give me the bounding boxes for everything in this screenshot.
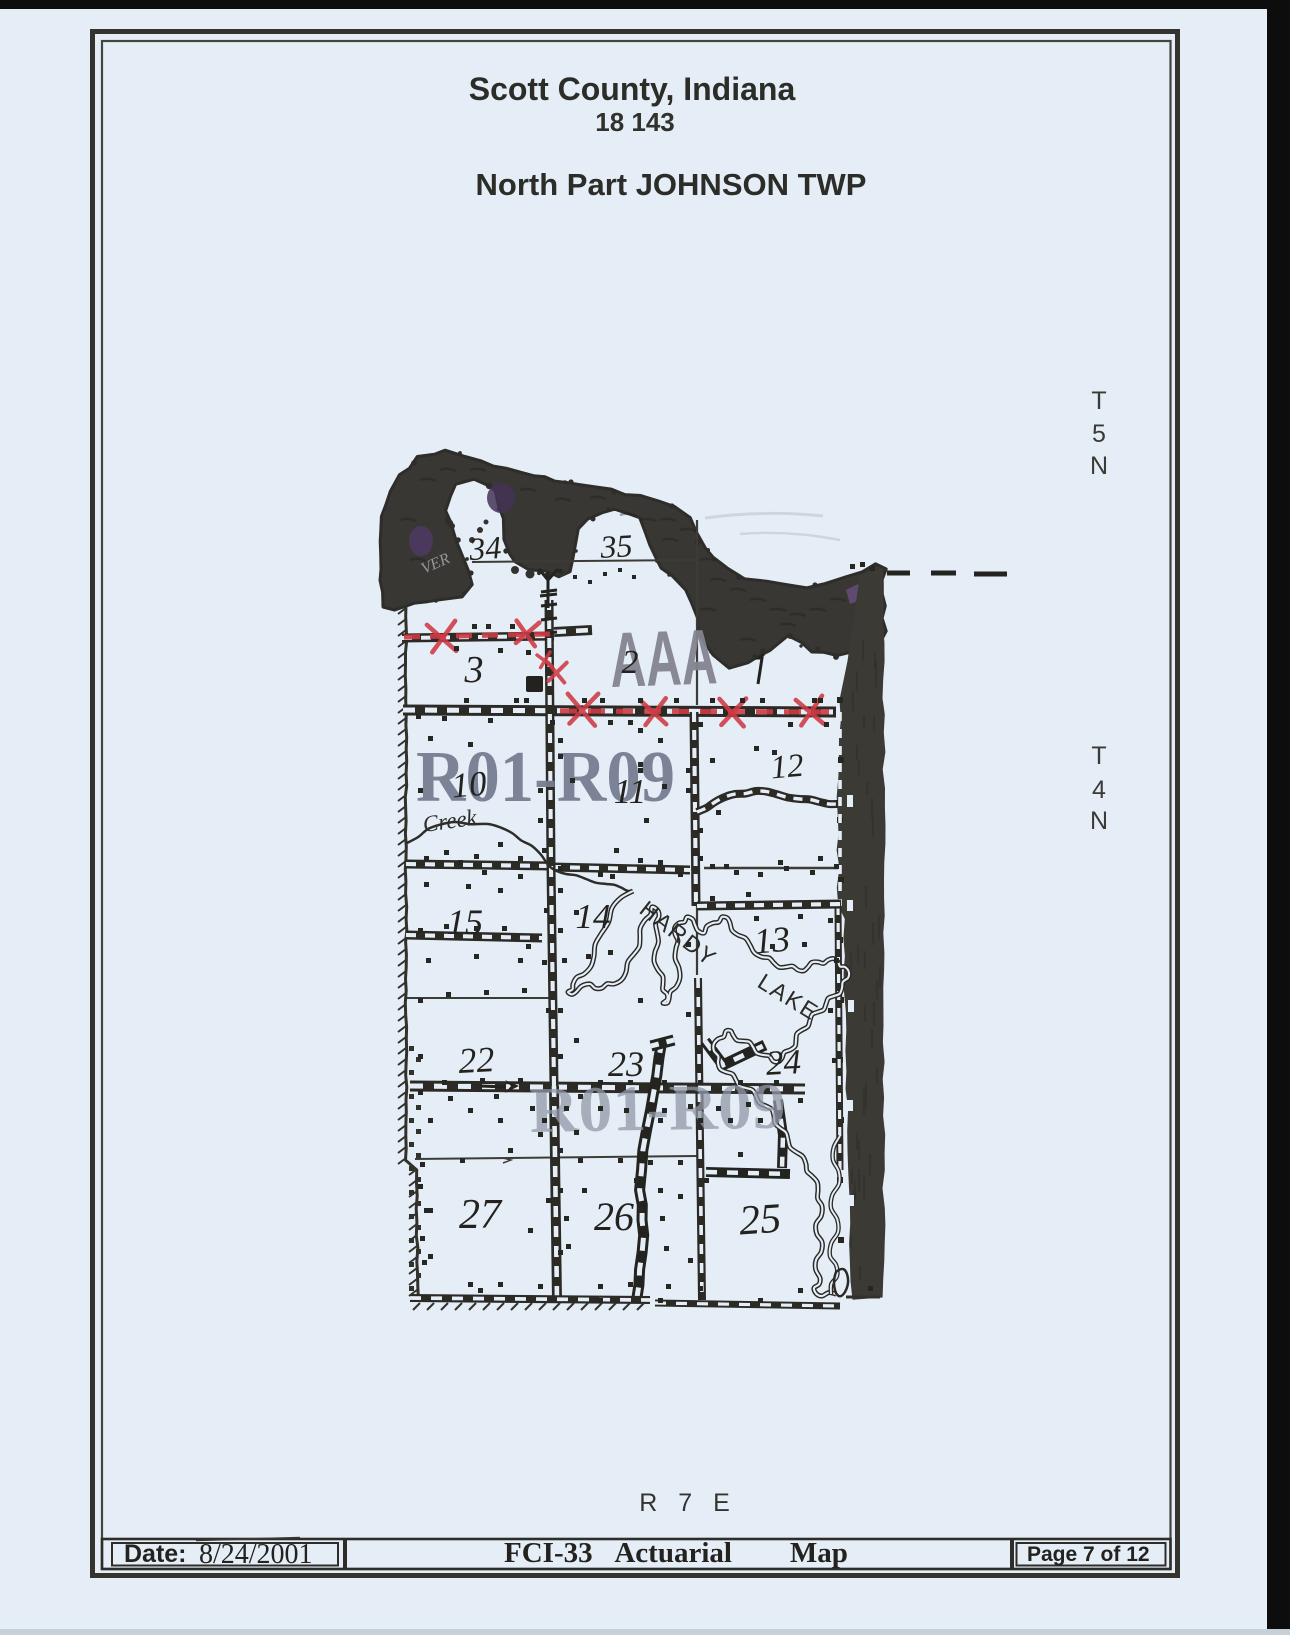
svg-text:24: 24 <box>765 1042 802 1083</box>
svg-text:North Part JOHNSON TWP: North Part JOHNSON TWP <box>476 167 867 202</box>
svg-text:R 7 E: R 7 E <box>639 1489 737 1517</box>
svg-text:18 143: 18 143 <box>595 107 675 137</box>
svg-text:3: 3 <box>464 649 484 691</box>
svg-text:10: 10 <box>450 764 489 806</box>
svg-text:2: 2 <box>622 644 639 681</box>
svg-text:34: 34 <box>467 529 502 567</box>
svg-text:23: 23 <box>608 1044 644 1084</box>
svg-text:27: 27 <box>459 1192 503 1238</box>
svg-text:8/24/2001: 8/24/2001 <box>199 1539 313 1570</box>
svg-text:11: 11 <box>614 772 646 811</box>
svg-text:Date:: Date: <box>124 1540 187 1568</box>
svg-text:25: 25 <box>738 1196 783 1245</box>
svg-text:15: 15 <box>447 902 483 942</box>
svg-text:T5N: T5N <box>1090 387 1108 480</box>
svg-text:Page 7 of 12: Page 7 of 12 <box>1027 1543 1150 1566</box>
svg-text:26: 26 <box>594 1194 634 1239</box>
svg-text:FCI-33 Actuarial Map: FCI-33 Actuarial Map <box>504 1537 848 1569</box>
svg-text:35: 35 <box>599 527 634 565</box>
svg-text:14: 14 <box>576 897 611 936</box>
svg-text:Scott County, Indiana: Scott County, Indiana <box>469 71 796 107</box>
svg-text:22: 22 <box>457 1039 495 1081</box>
svg-text:13: 13 <box>752 919 791 962</box>
svg-text:T4N: T4N <box>1090 742 1108 835</box>
